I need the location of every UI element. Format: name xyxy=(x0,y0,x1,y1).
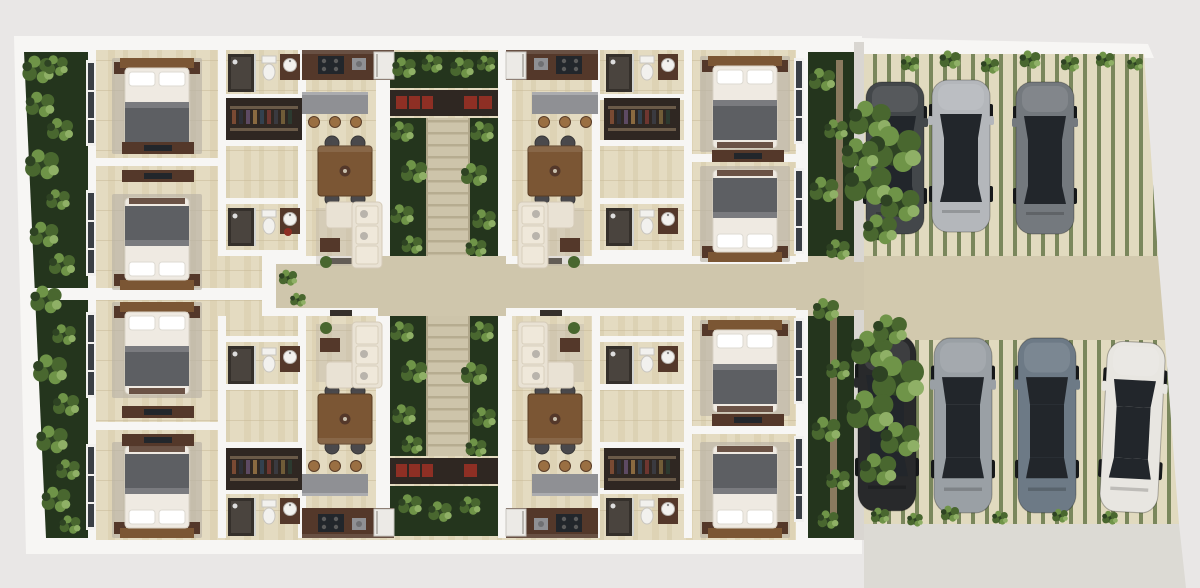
tv-console xyxy=(712,414,784,426)
walk-in-closet xyxy=(604,448,680,490)
kitchen-island xyxy=(532,461,598,497)
window xyxy=(794,168,804,254)
window xyxy=(794,318,804,404)
car-sedan-blue-gray xyxy=(1014,338,1080,513)
window xyxy=(86,190,96,276)
bed xyxy=(700,442,790,538)
red-bench xyxy=(409,464,420,477)
window xyxy=(794,436,804,522)
floor-plan-rendering xyxy=(0,0,1200,588)
stair-rail xyxy=(468,118,470,256)
bed xyxy=(700,320,790,416)
tv-console xyxy=(122,434,194,446)
red-bench xyxy=(422,464,433,477)
sidewalk xyxy=(864,524,1186,588)
window xyxy=(86,312,96,398)
tv-console xyxy=(122,170,194,182)
window xyxy=(86,60,96,146)
car-suv-silver xyxy=(928,80,994,232)
car-hatchback-silver xyxy=(930,338,996,513)
dining-set xyxy=(318,136,372,206)
kitchen xyxy=(506,508,598,538)
tv-console xyxy=(712,150,784,162)
kitchen-island xyxy=(302,461,368,497)
tree-trunk-top xyxy=(836,60,843,230)
bed xyxy=(112,58,202,154)
dining-set xyxy=(528,136,582,206)
red-bench xyxy=(409,96,420,109)
kitchen xyxy=(302,50,394,80)
walk-in-closet xyxy=(604,98,680,140)
red-bench xyxy=(464,96,477,109)
car-sedan-white xyxy=(1095,340,1170,513)
driveway xyxy=(864,256,1165,340)
red-bench xyxy=(396,96,407,109)
stair-rail xyxy=(426,316,428,456)
stair-rail xyxy=(426,118,428,256)
tv-console xyxy=(122,406,194,418)
unit-door xyxy=(540,310,562,316)
bed xyxy=(700,56,790,152)
bed xyxy=(112,302,202,398)
tv-console xyxy=(122,142,194,154)
red-bench xyxy=(479,96,492,109)
site-plan-svg xyxy=(0,0,1200,588)
sofa xyxy=(518,322,584,388)
sofa xyxy=(316,322,382,388)
kitchen-island xyxy=(302,92,368,128)
bed xyxy=(700,166,790,262)
window xyxy=(794,58,804,144)
red-bench xyxy=(396,464,407,477)
car-sedan-gray xyxy=(1012,82,1078,234)
red-bench xyxy=(464,464,477,477)
kitchen xyxy=(506,50,598,80)
walk-in-closet xyxy=(226,448,302,490)
kitchen-island xyxy=(532,92,598,128)
walk-in-closet xyxy=(226,98,302,140)
bed xyxy=(112,442,202,538)
bed xyxy=(112,194,202,290)
kitchen xyxy=(302,508,394,538)
staircase-bottom xyxy=(428,316,468,456)
sofa xyxy=(518,202,584,268)
dining-set xyxy=(528,384,582,454)
unit-door xyxy=(330,310,352,316)
window xyxy=(86,444,96,530)
red-accent-bowl xyxy=(284,228,292,236)
red-bench xyxy=(422,96,433,109)
sofa xyxy=(316,202,382,268)
dining-set xyxy=(318,384,372,454)
staircase-top xyxy=(428,118,468,256)
stair-rail xyxy=(468,316,470,456)
